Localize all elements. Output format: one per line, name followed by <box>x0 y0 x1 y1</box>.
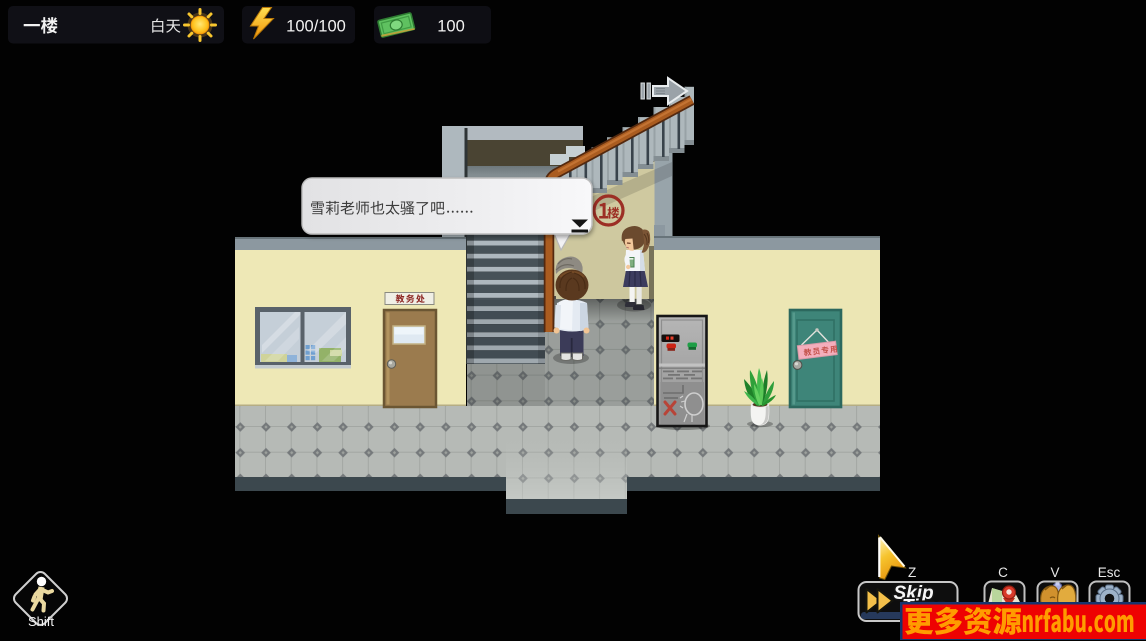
svg-text:100: 100 <box>437 18 465 36</box>
svg-text:C: C <box>998 565 1008 580</box>
svg-text:Z: Z <box>908 565 916 580</box>
svg-text:Shift: Shift <box>28 614 54 629</box>
svg-text:Esc: Esc <box>1098 565 1121 580</box>
svg-text:100/100: 100/100 <box>286 18 346 36</box>
svg-text:V: V <box>1050 565 1059 580</box>
